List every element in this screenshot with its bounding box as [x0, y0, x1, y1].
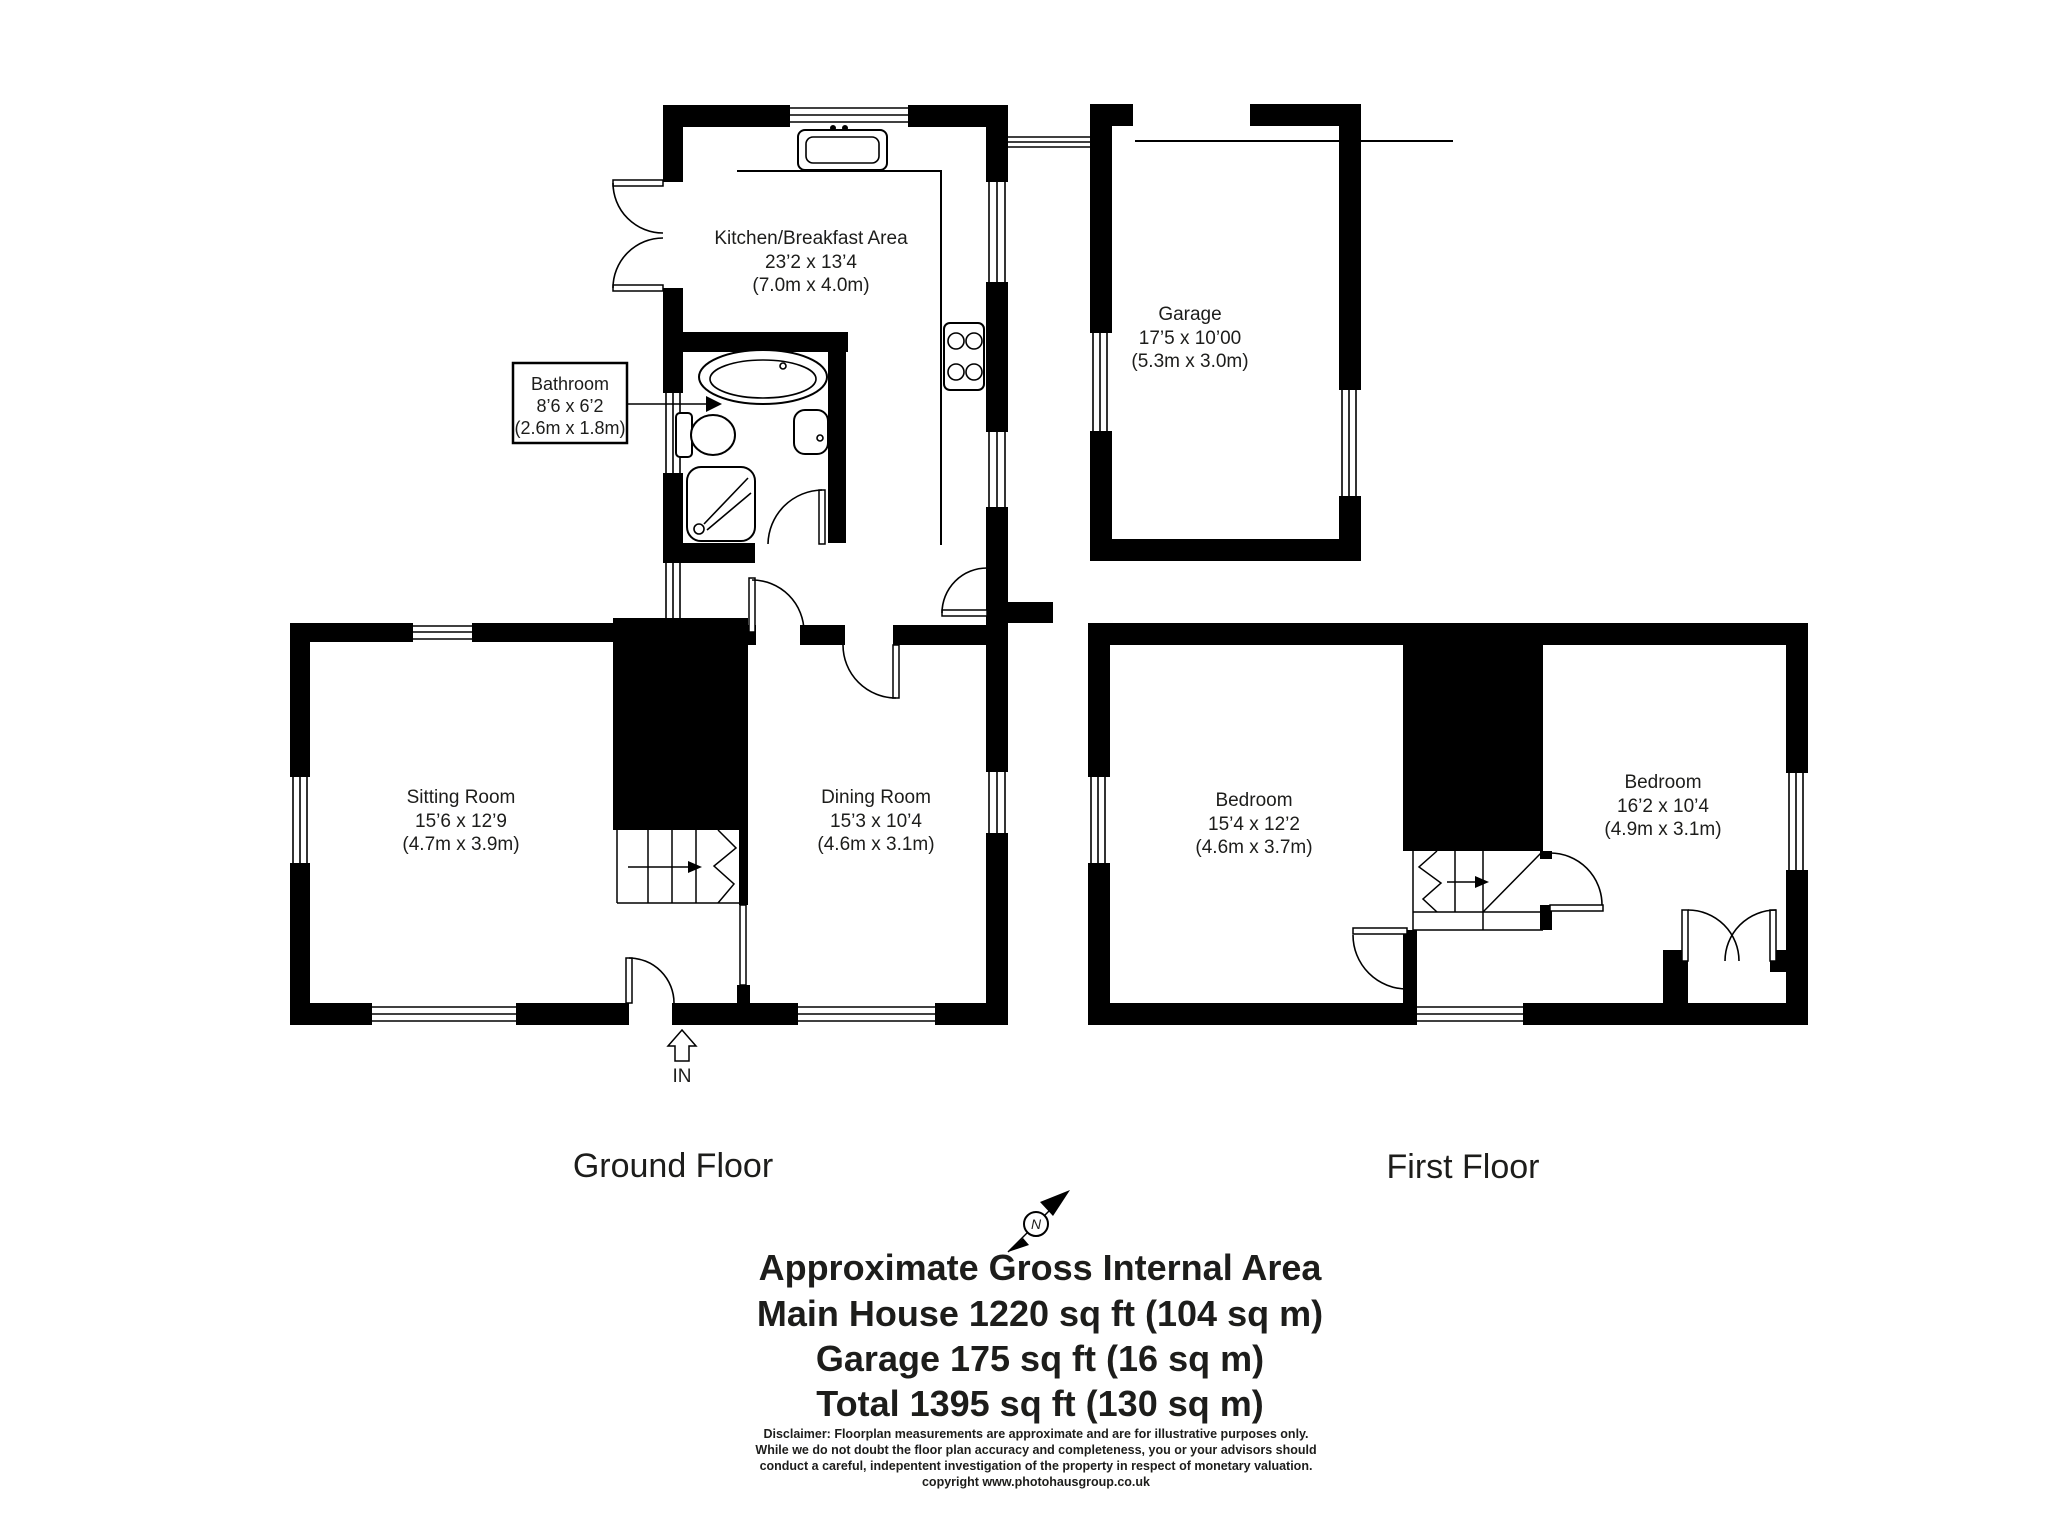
sitting-room-size-metric: (4.7m x 3.9m) — [402, 834, 519, 855]
disclaimer: Disclaimer: Floorplan measurements are a… — [755, 1427, 1316, 1489]
hall-walls — [744, 625, 986, 645]
bathroom-size-metric: (2.6m x 1.8m) — [514, 418, 625, 438]
area-summary: Approximate Gross Internal Area Main Hou… — [757, 1247, 1323, 1424]
bedroom-right-name: Bedroom — [1624, 772, 1701, 793]
first-floor-title: First Floor — [1387, 1148, 1540, 1186]
bedroom-left-size-imperial: 15’4 x 12’2 — [1208, 814, 1300, 835]
summary-total: Total 1395 sq ft (130 sq m) — [816, 1383, 1263, 1424]
stairs-ground-icon — [617, 830, 750, 1005]
compass-north-label: N — [1031, 1216, 1042, 1232]
sitting-room-size-imperial: 15’6 x 12’9 — [415, 811, 507, 832]
room-label-kitchen: Kitchen/Breakfast Area 23’2 x 13’4 (7.0m… — [714, 228, 908, 296]
entrance-arrow-icon — [668, 1030, 696, 1061]
summary-heading: Approximate Gross Internal Area — [759, 1247, 1323, 1288]
room-label-garage: Garage 17’5 x 10’00 (5.3m x 3.0m) — [1131, 304, 1248, 372]
dining-room-name: Dining Room — [821, 787, 931, 808]
disclaimer-line-2: While we do not doubt the floor plan acc… — [755, 1443, 1316, 1457]
ground-floor-title: Ground Floor — [573, 1147, 773, 1185]
label-leader-arrow-icon — [706, 396, 722, 412]
chimney-block — [613, 618, 748, 830]
french-doors-kitchen — [613, 180, 663, 291]
first-floor-plan: Bedroom 15’4 x 12’2 (4.6m x 3.7m) Bedroo… — [1088, 623, 1808, 1186]
sitting-room-name: Sitting Room — [407, 787, 516, 808]
ground-floor-plan: IN Kitchen/Breakfast Area 23’2 x 13’4 (7… — [290, 105, 1053, 1185]
garage-plan: Garage 17’5 x 10’00 (5.3m x 3.0m) — [1008, 104, 1453, 561]
entrance-label: IN — [673, 1066, 692, 1087]
door-bathroom — [768, 490, 825, 544]
dining-room-size-metric: (4.6m x 3.1m) — [817, 834, 934, 855]
bedroom-left-size-metric: (4.6m x 3.7m) — [1195, 837, 1312, 858]
dining-room-size-imperial: 15’3 x 10’4 — [830, 811, 922, 832]
bedroom-right-size-imperial: 16’2 x 10’4 — [1617, 796, 1709, 817]
floorplan-page: IN Kitchen/Breakfast Area 23’2 x 13’4 (7… — [0, 0, 2048, 1534]
north-compass-icon: N — [1008, 1190, 1070, 1252]
bathtub-icon — [699, 350, 827, 404]
garage-name: Garage — [1158, 304, 1221, 325]
garage-size-metric: (5.3m x 3.0m) — [1131, 351, 1248, 372]
kitchen-size-imperial: 23’2 x 13’4 — [765, 252, 857, 273]
french-doors-bedroom-right — [1682, 910, 1776, 961]
basin-icon — [794, 410, 828, 454]
summary-garage: Garage 175 sq ft (16 sq m) — [816, 1338, 1264, 1379]
summary-main-house: Main House 1220 sq ft (104 sq m) — [757, 1293, 1323, 1334]
door-dining — [843, 645, 899, 698]
garage-size-imperial: 17’5 x 10’00 — [1139, 328, 1241, 349]
disclaimer-line-3: conduct a careful, indepentent investiga… — [760, 1459, 1313, 1473]
room-label-bedroom-left: Bedroom 15’4 x 12’2 (4.6m x 3.7m) — [1195, 790, 1312, 858]
bathroom-size-imperial: 8’6 x 6’2 — [536, 396, 603, 416]
kitchen-size-metric: (7.0m x 4.0m) — [752, 275, 869, 296]
hob-icon — [944, 323, 984, 390]
door-kitchen — [942, 568, 987, 616]
room-label-bedroom-right: Bedroom 16’2 x 10’4 (4.9m x 3.1m) — [1604, 772, 1721, 840]
toilet-icon — [676, 413, 735, 457]
room-label-dining-room: Dining Room 15’3 x 10’4 (4.6m x 3.1m) — [817, 787, 934, 855]
bathroom-name: Bathroom — [531, 374, 609, 394]
stairs-first-icon — [1413, 851, 1543, 930]
kitchen-name: Kitchen/Breakfast Area — [714, 228, 908, 249]
bedroom-left-name: Bedroom — [1215, 790, 1292, 811]
door-bedroom-left — [1353, 928, 1407, 989]
door-hall-sitting — [749, 578, 804, 632]
door-bedroom-right — [1550, 853, 1603, 911]
bedroom-right-size-metric: (4.9m x 3.1m) — [1604, 819, 1721, 840]
room-label-sitting-room: Sitting Room 15’6 x 12’9 (4.7m x 3.9m) — [402, 787, 519, 855]
disclaimer-copyright: copyright www.photohausgroup.co.uk — [922, 1475, 1150, 1489]
disclaimer-line-1: Disclaimer: Floorplan measurements are a… — [763, 1427, 1308, 1441]
shower-icon — [687, 467, 755, 541]
floorplan-image: IN Kitchen/Breakfast Area 23’2 x 13’4 (7… — [0, 0, 2048, 1534]
front-door — [626, 958, 674, 1003]
kitchen-sink-icon — [798, 125, 887, 170]
